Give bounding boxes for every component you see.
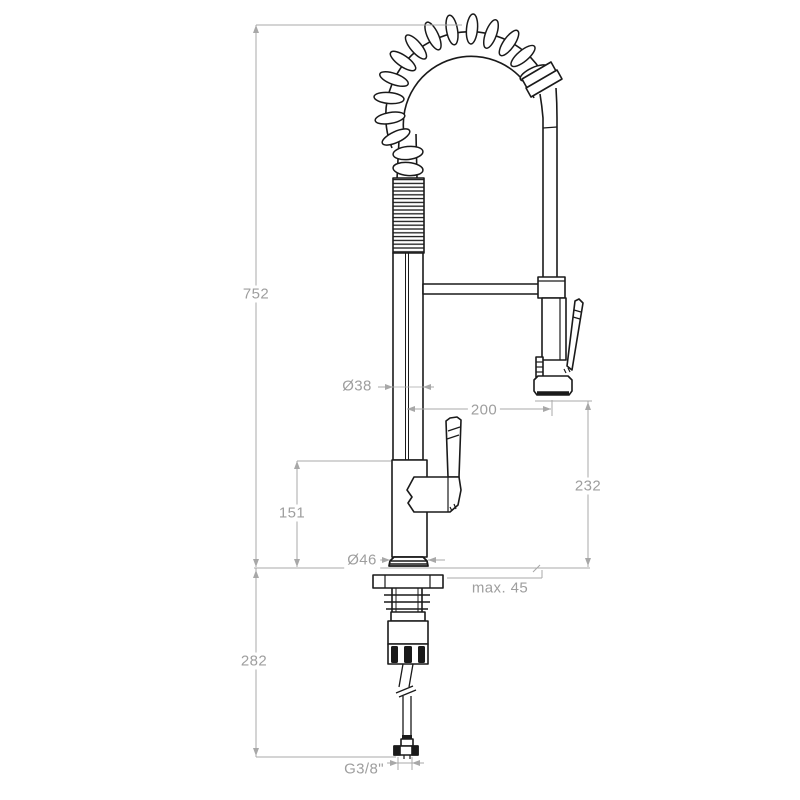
dim-label-pipe-diameter: Ø38 <box>339 378 375 395</box>
washer-plate <box>373 575 443 588</box>
supply-hose <box>396 664 416 742</box>
dim-label-below-deck-height: 282 <box>238 653 270 670</box>
spray-head <box>534 277 583 395</box>
riser-pipe <box>393 253 423 460</box>
dim-label-body-height: 151 <box>276 505 308 522</box>
base-flange <box>389 557 428 566</box>
dim-label-max-deck-thickness: max. 45 <box>469 580 531 597</box>
dim-label-spout-reach: 200 <box>468 402 500 419</box>
threaded-shank <box>384 588 430 612</box>
dim-label-outlet-height: 232 <box>572 478 604 495</box>
technical-drawing-page: 752 Ø38 200 232 151 Ø46 max. 45 282 G3/8… <box>0 0 800 800</box>
faucet-dimension-drawing <box>0 0 800 800</box>
spring-coil-loops <box>374 14 550 177</box>
faucet-line-art <box>373 14 583 759</box>
support-arm <box>423 284 539 294</box>
spray-head-cap <box>534 376 572 395</box>
dim-label-base-diameter: Ø46 <box>344 552 380 569</box>
spring-coil-block <box>393 178 424 253</box>
pull-down-hose <box>540 88 557 278</box>
supply-fitting <box>394 739 418 759</box>
mounting-nut <box>388 612 428 664</box>
spray-trigger <box>564 299 583 373</box>
dim-label-total-height: 752 <box>240 286 272 303</box>
dim-label-supply-connection: G3/8" <box>341 761 387 778</box>
